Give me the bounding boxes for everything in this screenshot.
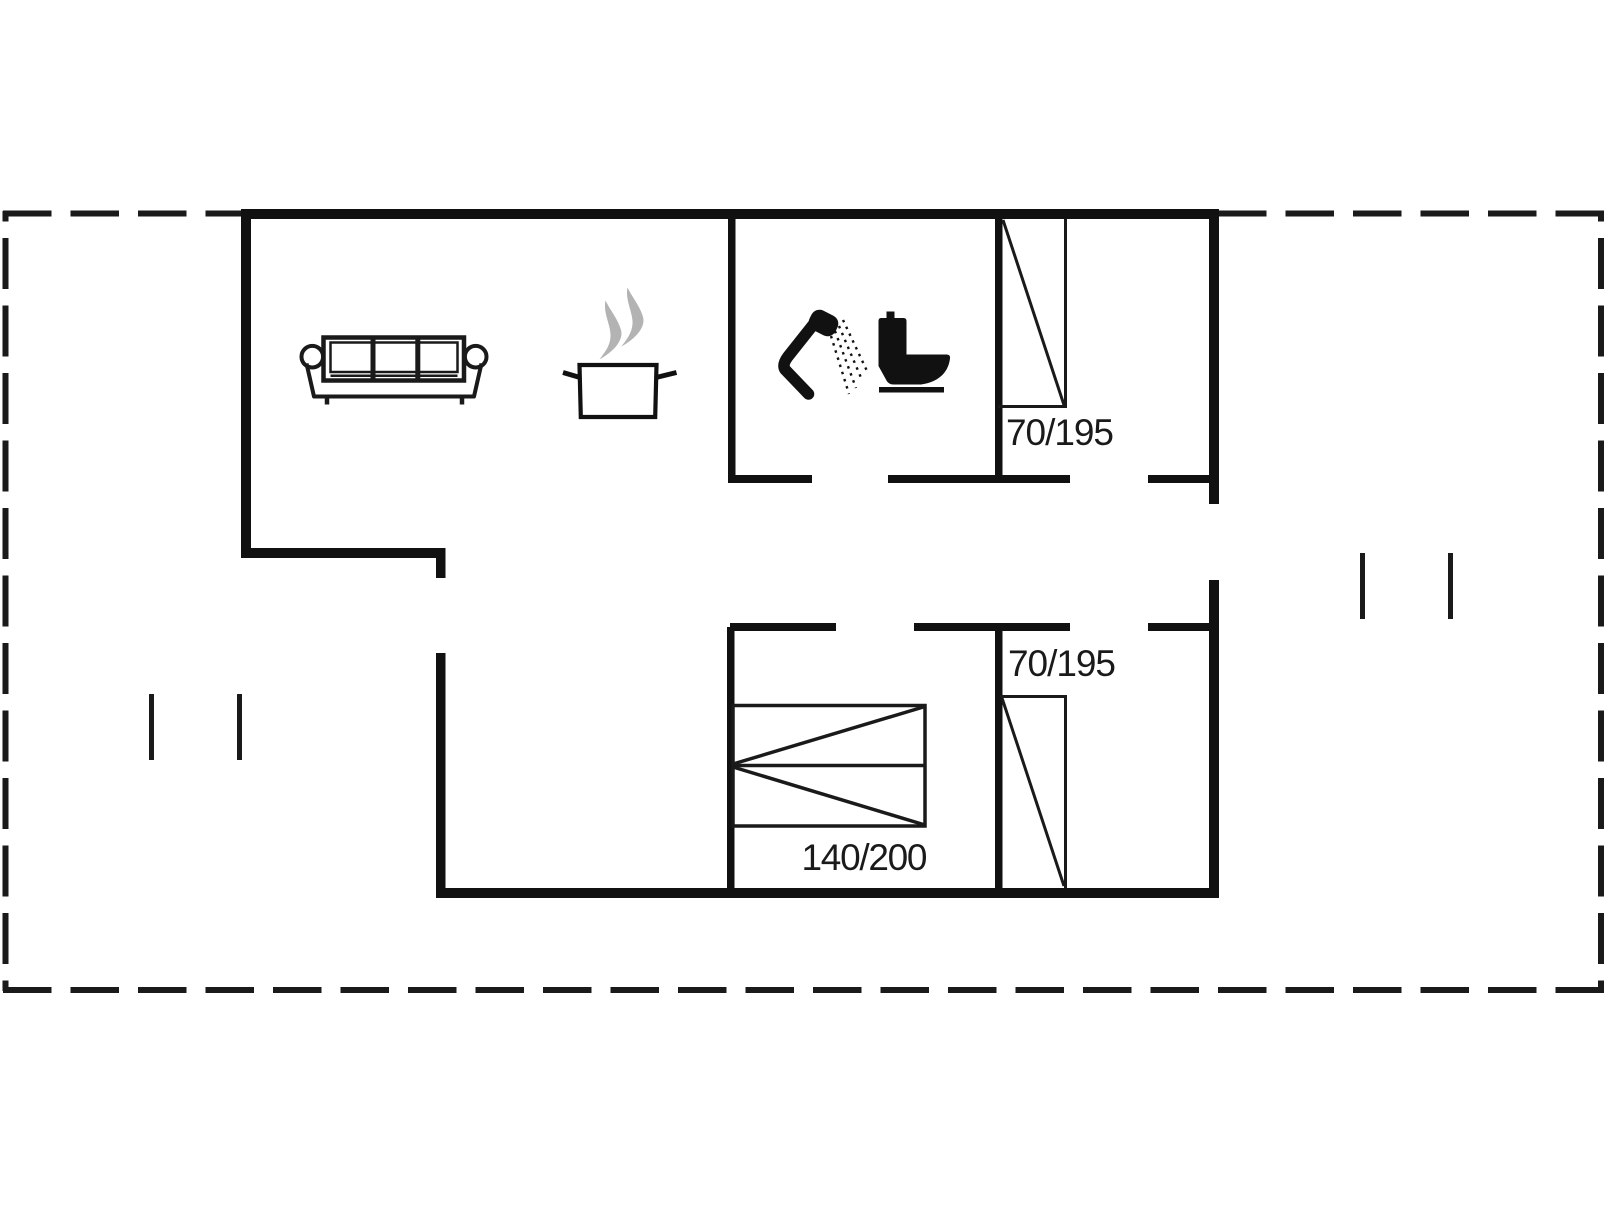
svg-text:140/200: 140/200 [802,837,928,878]
svg-text:70/195: 70/195 [1006,412,1114,453]
svg-text:70/195: 70/195 [1008,643,1116,684]
